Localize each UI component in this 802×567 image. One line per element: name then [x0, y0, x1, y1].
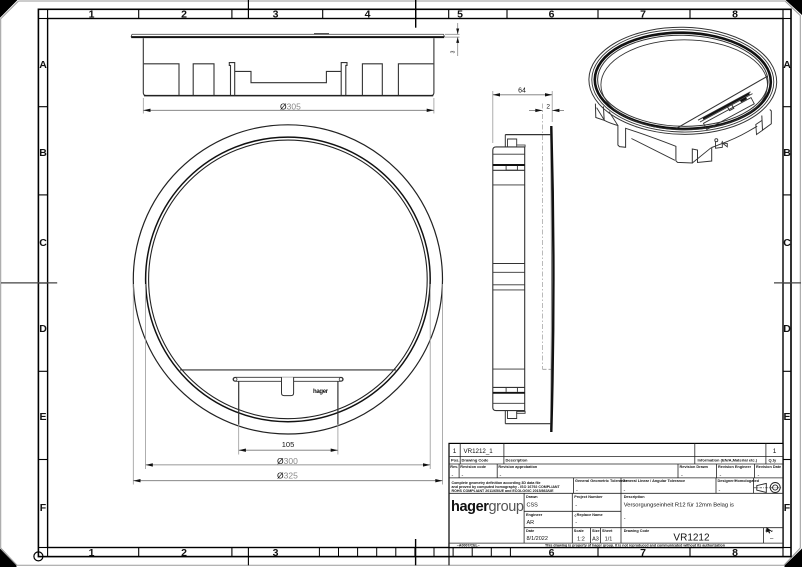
svg-text:8/1/2022: 8/1/2022 [527, 536, 548, 542]
svg-text:8: 8 [732, 547, 738, 559]
svg-text:General Geometric Tolerance: General Geometric Tolerance [575, 479, 628, 483]
svg-text:Drawing Code: Drawing Code [462, 458, 490, 463]
svg-text:-: - [462, 472, 464, 478]
svg-text:Scale: Scale [574, 529, 584, 533]
svg-text:Engineer: Engineer [526, 513, 543, 517]
svg-text:F: F [784, 502, 791, 514]
svg-text:VR1212_1: VR1212_1 [464, 448, 494, 455]
svg-text:Revision code: Revision code [460, 465, 486, 469]
svg-text:A3: A3 [592, 536, 599, 542]
svg-text:Sheet: Sheet [602, 529, 613, 533]
svg-text:Description: Description [624, 495, 646, 499]
svg-text:7: 7 [640, 547, 646, 559]
svg-text:Versorgungseinheit R12 für 12m: Versorgungseinheit R12 für 12mm Belag is [624, 503, 734, 509]
svg-text:-: - [624, 487, 626, 493]
svg-text:~A0007/CEL~: ~A0007/CEL~ [457, 544, 480, 548]
svg-text:3: 3 [273, 9, 279, 21]
svg-text:-: - [452, 472, 454, 478]
svg-text:CSS: CSS [527, 503, 539, 509]
svg-text:Ø305: Ø305 [280, 101, 301, 111]
svg-text:A: A [783, 59, 791, 71]
svg-text:2: 2 [546, 103, 550, 110]
svg-text:Revision approbation: Revision approbation [498, 465, 537, 469]
svg-text:Size: Size [592, 529, 600, 533]
svg-text:1:2: 1:2 [577, 536, 585, 542]
svg-text:105: 105 [282, 440, 295, 449]
svg-text:Drawing Code: Drawing Code [624, 529, 650, 533]
svg-text:Ø325: Ø325 [277, 471, 298, 481]
svg-text:D: D [783, 323, 791, 335]
svg-text:Ø300: Ø300 [277, 456, 298, 466]
svg-text:-: - [720, 472, 722, 478]
svg-text:This drawing is property of ha: This drawing is property of hager group.… [545, 544, 725, 548]
svg-text:Rev.: Rev. [450, 465, 458, 469]
svg-text:¿Replace Name: ¿Replace Name [574, 513, 602, 517]
svg-text:3: 3 [450, 50, 456, 53]
svg-text:-: - [624, 516, 626, 522]
svg-text:F: F [40, 502, 47, 514]
svg-text:-: - [681, 472, 683, 478]
svg-text:4: 4 [365, 9, 371, 21]
svg-text:General Linear / Angular Toler: General Linear / Angular Tolerance [623, 479, 686, 483]
svg-text:6: 6 [549, 9, 555, 21]
svg-text:Q.ty: Q.ty [769, 458, 778, 463]
svg-text:-: - [575, 503, 577, 509]
svg-text:C: C [39, 237, 47, 249]
svg-text:1/1: 1/1 [605, 536, 613, 542]
svg-text:Designer/Homologated: Designer/Homologated [718, 479, 760, 483]
svg-text:1: 1 [89, 547, 95, 559]
svg-text:6: 6 [549, 547, 555, 559]
svg-text:hagergroup: hagergroup [451, 499, 524, 515]
svg-text:C: C [783, 237, 791, 249]
svg-text:3: 3 [273, 547, 279, 559]
svg-text:AR: AR [527, 520, 535, 526]
svg-text:8: 8 [732, 9, 738, 21]
svg-text:Information (EN/A,Material etc: Information (EN/A,Material etc.) [698, 458, 758, 463]
svg-text:Revision Drawn: Revision Drawn [680, 465, 709, 469]
svg-text:Description: Description [506, 458, 529, 463]
svg-text:-: - [500, 472, 502, 478]
svg-text:Date: Date [526, 529, 534, 533]
svg-text:2: 2 [181, 9, 187, 21]
svg-text:-: - [575, 520, 577, 526]
svg-text:1: 1 [453, 448, 457, 455]
svg-text:VR1212: VR1212 [673, 533, 710, 544]
svg-text:ROHS COMPLIANT 2011/65/UE and: ROHS COMPLIANT 2011/65/UE and ECOLOGIC 2… [452, 489, 555, 493]
svg-text:A: A [39, 59, 47, 71]
svg-text:D: D [39, 323, 47, 335]
svg-text:E: E [783, 411, 790, 423]
svg-text:1: 1 [773, 448, 777, 455]
svg-text:hager: hager [313, 389, 329, 395]
svg-text:Pos.: Pos. [451, 458, 459, 463]
svg-text:7: 7 [640, 9, 646, 21]
svg-text:-: - [758, 472, 760, 478]
svg-text:2: 2 [181, 547, 187, 559]
svg-text:B: B [783, 147, 791, 159]
svg-text:-: - [576, 487, 578, 493]
svg-text:Drawn: Drawn [526, 495, 538, 499]
svg-text:1: 1 [89, 9, 95, 21]
svg-text:E: E [39, 411, 46, 423]
svg-text:Revision Engineer: Revision Engineer [718, 465, 752, 469]
svg-text:Project Number: Project Number [574, 495, 603, 499]
svg-text:-: - [719, 487, 721, 493]
svg-text:Revision Date: Revision Date [756, 465, 781, 469]
svg-text:5: 5 [457, 9, 463, 21]
svg-text:B: B [39, 147, 47, 159]
svg-text:64: 64 [518, 87, 526, 94]
